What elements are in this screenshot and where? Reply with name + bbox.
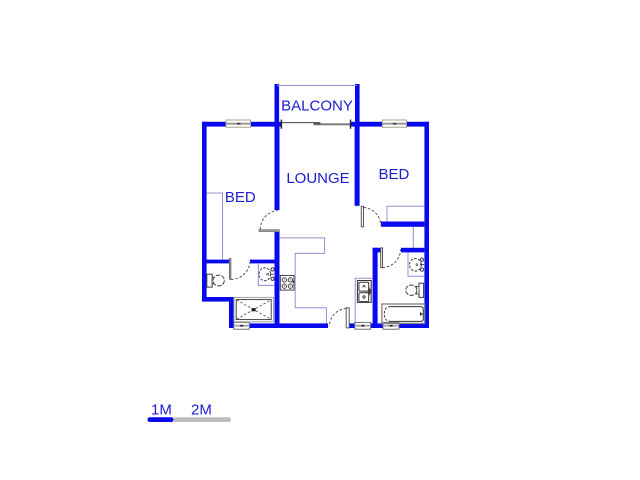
- svg-text:2M: 2M: [191, 402, 212, 419]
- svg-text:BALCONY: BALCONY: [281, 98, 353, 115]
- svg-text:BED: BED: [378, 166, 409, 183]
- svg-text:LOUNGE: LOUNGE: [286, 170, 349, 187]
- svg-text:1M: 1M: [151, 402, 172, 419]
- svg-text:BED: BED: [225, 189, 256, 206]
